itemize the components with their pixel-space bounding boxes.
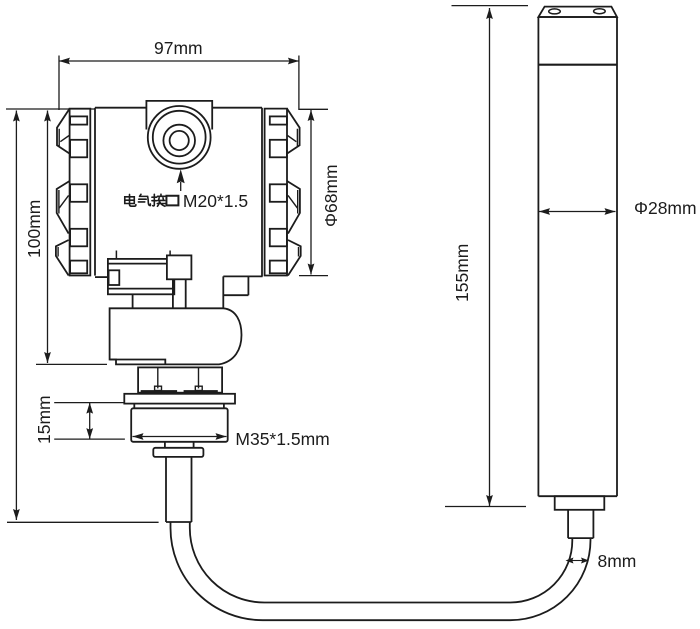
svg-text:Φ68mm: Φ68mm — [321, 164, 341, 227]
svg-text:100mm: 100mm — [24, 200, 44, 258]
svg-text:8mm: 8mm — [598, 551, 637, 571]
svg-text:15mm: 15mm — [34, 395, 54, 444]
svg-text:M35*1.5mm: M35*1.5mm — [235, 429, 329, 449]
svg-text:155mm: 155mm — [452, 244, 472, 302]
svg-text:Φ28mm: Φ28mm — [634, 198, 697, 218]
svg-text:97mm: 97mm — [154, 38, 203, 58]
svg-text:M20*1.5: M20*1.5 — [183, 191, 248, 211]
